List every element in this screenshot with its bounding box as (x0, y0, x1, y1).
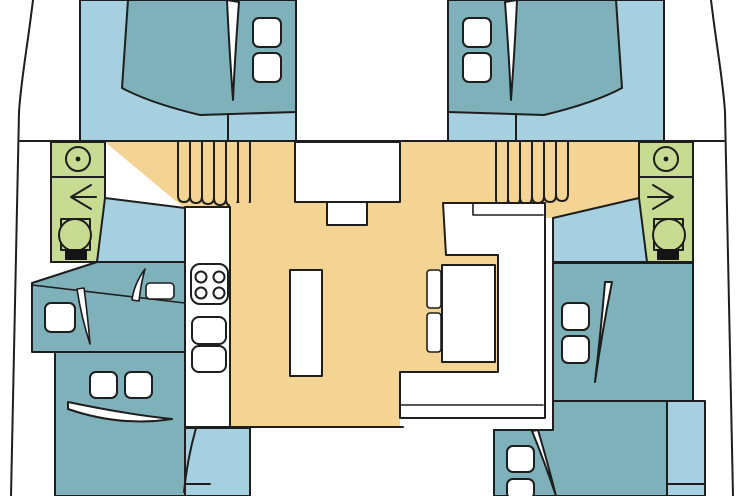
pillow (463, 18, 491, 47)
port-forward-cabin (80, 0, 296, 142)
galley-island (290, 270, 322, 376)
nav-station (295, 142, 400, 202)
stove-burners-icon (191, 264, 228, 304)
hull-outline-port (11, 0, 33, 496)
starboard-head (639, 142, 693, 262)
starboard-aft-passage (667, 401, 705, 496)
port-mid-cabin (32, 262, 185, 352)
port-aft-passage (184, 428, 250, 496)
pillow (507, 446, 534, 472)
dinette-table (442, 265, 495, 362)
catamaran-floorplan (0, 0, 744, 496)
pillow (125, 372, 152, 398)
pillow (562, 303, 589, 330)
cabin-berth (55, 352, 185, 496)
pillow (562, 336, 589, 363)
starboard-mid-cabin (553, 263, 693, 401)
nav-seat (327, 202, 367, 225)
starboard-forward-cabin (448, 0, 664, 142)
port-aft-cabin (55, 352, 185, 496)
pillow (463, 53, 491, 82)
pillow (90, 372, 117, 398)
sink-basin-icon (192, 346, 226, 372)
seat-cushion (427, 313, 441, 352)
passage-floor (185, 428, 250, 496)
hull-outline-starboard (711, 0, 733, 496)
pillow (507, 479, 534, 496)
cabin-berth (553, 263, 693, 401)
pillow (146, 283, 174, 299)
seat-cushion (427, 270, 441, 308)
pillow (45, 303, 75, 332)
floorplan-svg (0, 0, 744, 496)
sink-basin-icon (192, 317, 226, 344)
pillow (253, 53, 281, 82)
port-head (51, 142, 105, 262)
passage-floor (667, 401, 705, 496)
port-corridor (97, 198, 185, 262)
galley-counter (185, 207, 230, 427)
pillow (253, 18, 281, 47)
